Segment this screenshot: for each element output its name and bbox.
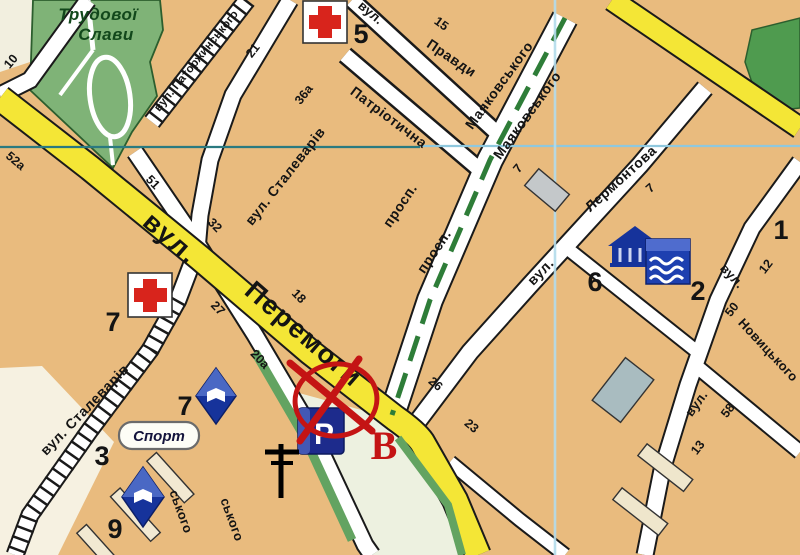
sport-label: Спорт — [119, 422, 199, 449]
medical-cross-icon — [303, 1, 347, 43]
park-name-line2: Слави — [78, 25, 134, 44]
medical-cross-icon — [128, 273, 172, 317]
poi-number-5: 5 — [353, 19, 368, 49]
sport-label-text: Спорт — [133, 428, 185, 445]
marker-letter: В — [371, 423, 398, 468]
park-name-line1: Трудової — [58, 5, 139, 24]
map-canvas: P Трудової Слави вул. Перемоги вул. Стал… — [0, 0, 800, 555]
poi-number-7-sport: 7 — [177, 391, 192, 421]
poi-number-1: 1 — [773, 215, 788, 245]
poi-number-3: 3 — [94, 441, 109, 471]
city-map: P Трудової Слави вул. Перемоги вул. Стал… — [0, 0, 800, 555]
poi-number-7-left: 7 — [105, 307, 120, 337]
poi-number-9: 9 — [107, 514, 122, 544]
poi-number-6: 6 — [587, 267, 602, 297]
poi-number-2: 2 — [690, 276, 705, 306]
pool-waves-icon — [646, 239, 690, 284]
